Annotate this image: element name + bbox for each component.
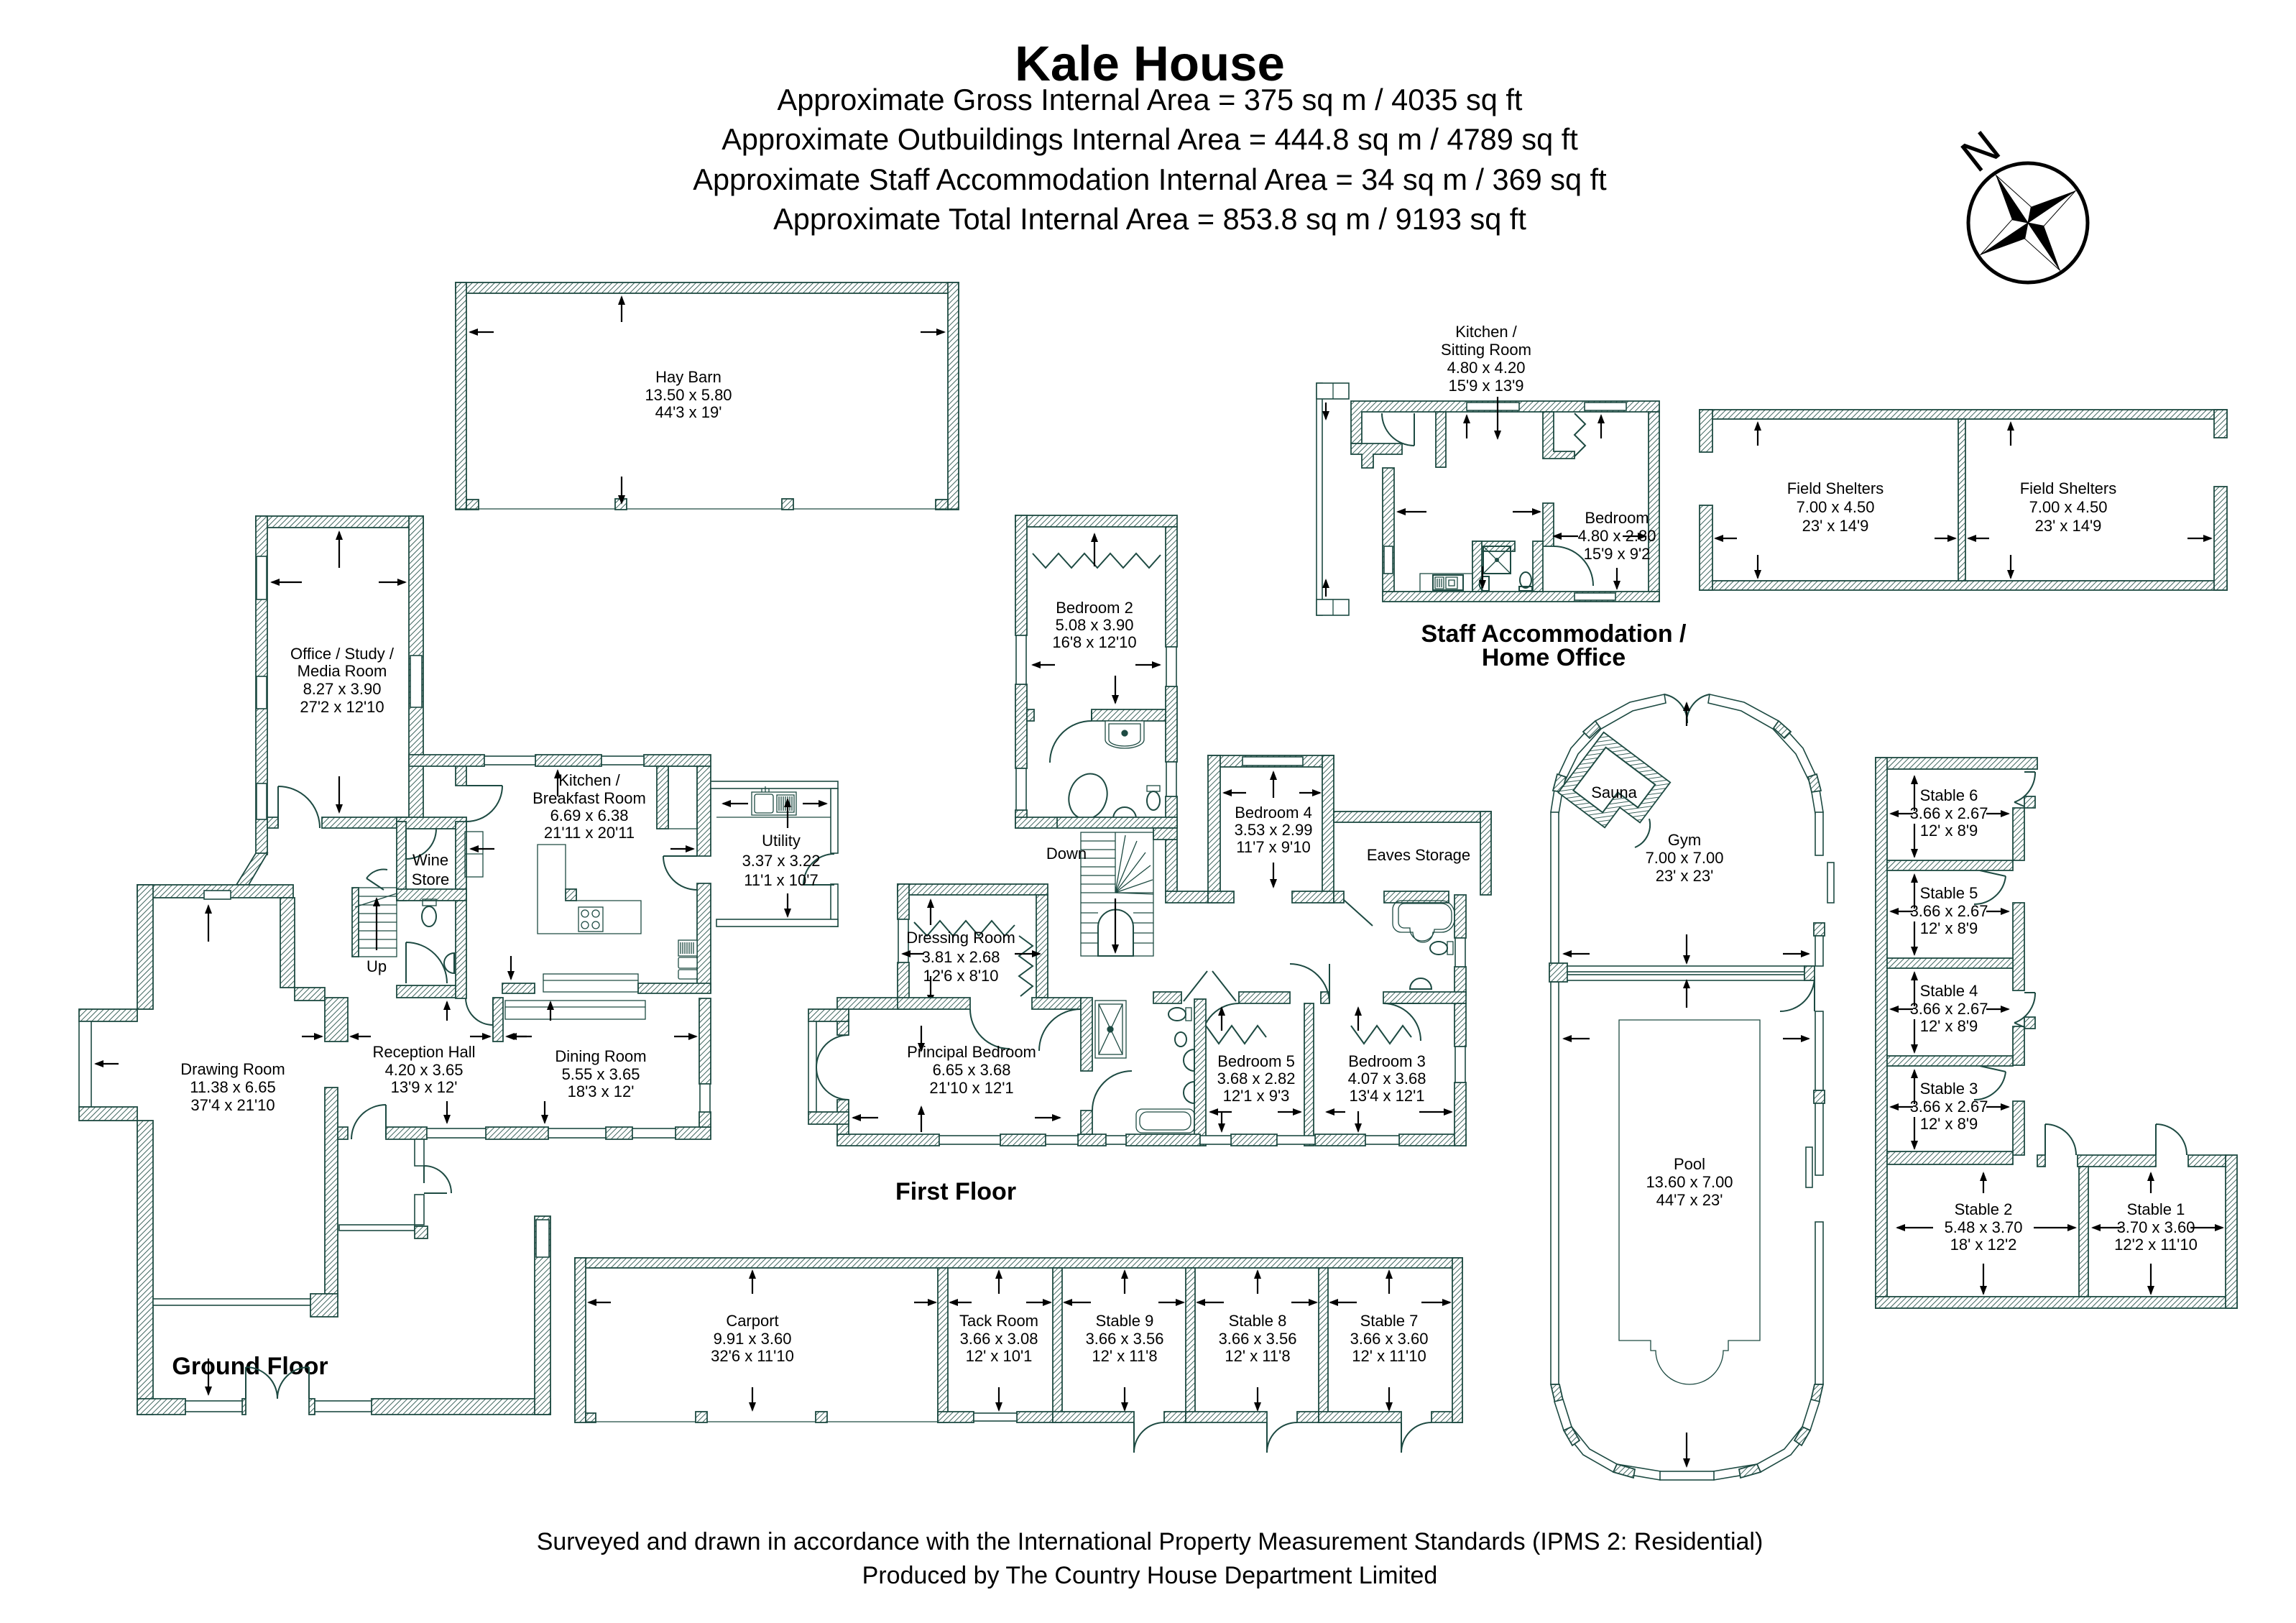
svg-text:3.66 x 3.56: 3.66 x 3.56 [1086,1330,1164,1348]
svg-text:8.27 x 3.90: 8.27 x 3.90 [303,680,382,698]
svg-text:Media Room: Media Room [298,662,387,680]
svg-text:6.69 x 6.38: 6.69 x 6.38 [550,806,629,824]
svg-text:9.91 x 3.60: 9.91 x 3.60 [714,1330,792,1348]
svg-text:Office / Study /: Office / Study / [290,645,395,663]
svg-text:Stable 3: Stable 3 [1920,1080,1978,1098]
svg-text:Drawing Room: Drawing Room [180,1060,285,1078]
svg-text:3.66 x 2.67: 3.66 x 2.67 [1910,1098,1988,1116]
svg-text:44'7 x 23': 44'7 x 23' [1656,1191,1723,1209]
svg-text:Store: Store [412,870,450,888]
svg-text:Up: Up [366,957,387,975]
svg-text:13.60 x 7.00: 13.60 x 7.00 [1646,1173,1733,1191]
svg-text:12'1 x 9'3: 12'1 x 9'3 [1223,1087,1290,1105]
svg-text:21'11 x 20'11: 21'11 x 20'11 [544,824,635,842]
svg-text:Stable 9: Stable 9 [1096,1312,1154,1330]
svg-text:5.08 x 3.90: 5.08 x 3.90 [1056,616,1134,634]
svg-text:21'10 x 12'1: 21'10 x 12'1 [929,1079,1013,1097]
svg-text:Approximate Total Internal Are: Approximate Total Internal Area = 853.8 … [773,202,1526,236]
svg-text:Stable 8: Stable 8 [1229,1312,1287,1330]
svg-text:23' x 23': 23' x 23' [1656,867,1714,885]
svg-text:3.68 x 2.82: 3.68 x 2.82 [1217,1070,1296,1088]
svg-text:12' x 11'8: 12' x 11'8 [1092,1347,1157,1365]
svg-text:11.38 x 6.65: 11.38 x 6.65 [190,1078,275,1096]
svg-text:3.53 x 2.99: 3.53 x 2.99 [1235,821,1313,839]
svg-text:Eaves Storage: Eaves Storage [1367,846,1470,864]
svg-text:Sitting Room: Sitting Room [1441,341,1531,359]
svg-text:Sauna: Sauna [1591,783,1637,801]
svg-text:Home Office: Home Office [1482,644,1626,671]
svg-text:Utility: Utility [762,832,801,850]
svg-text:Wine: Wine [412,851,448,869]
svg-text:12'2 x 11'10: 12'2 x 11'10 [2114,1236,2198,1254]
svg-text:12' x 8'9: 12' x 8'9 [1920,1017,1978,1035]
svg-text:Bedroom 2: Bedroom 2 [1056,599,1133,617]
svg-text:Bedroom 3: Bedroom 3 [1348,1052,1426,1070]
svg-text:37'4 x 21'10: 37'4 x 21'10 [190,1096,275,1114]
svg-text:18'3 x 12': 18'3 x 12' [568,1082,635,1100]
svg-text:7.00 x 4.50: 7.00 x 4.50 [1797,498,1875,516]
svg-text:4.80 x 4.20: 4.80 x 4.20 [1447,359,1526,377]
svg-text:13'9 x 12': 13'9 x 12' [391,1078,458,1096]
svg-text:3.70 x 3.60: 3.70 x 3.60 [2117,1218,2195,1236]
svg-text:Stable 1: Stable 1 [2127,1200,2185,1218]
svg-text:44'3 x 19': 44'3 x 19' [655,403,722,421]
svg-text:4.20 x 3.65: 4.20 x 3.65 [385,1061,464,1079]
svg-text:Reception Hall: Reception Hall [372,1043,475,1061]
svg-text:Hay Barn: Hay Barn [655,368,721,386]
svg-text:Stable 5: Stable 5 [1920,884,1978,902]
svg-text:3.66 x 3.08: 3.66 x 3.08 [960,1330,1038,1348]
svg-text:11'7 x 9'10: 11'7 x 9'10 [1236,838,1310,856]
svg-text:Field Shelters: Field Shelters [2020,479,2117,497]
svg-text:Principal Bedroom: Principal Bedroom [907,1043,1036,1061]
svg-text:Approximate Staff Accommodatio: Approximate Staff Accommodation Internal… [693,162,1607,196]
svg-text:Stable 2: Stable 2 [1955,1200,2013,1218]
svg-text:Ground Floor: Ground Floor [172,1353,328,1380]
svg-text:Dining Room: Dining Room [555,1047,646,1065]
svg-text:Produced by The Country House: Produced by The Country House Department… [862,1562,1438,1589]
svg-text:Bedroom 5: Bedroom 5 [1217,1052,1295,1070]
svg-text:4.07 x 3.68: 4.07 x 3.68 [1348,1070,1426,1088]
svg-text:Tack Room: Tack Room [959,1312,1038,1330]
svg-text:13.50 x 5.80: 13.50 x 5.80 [645,386,732,404]
svg-text:Field Shelters: Field Shelters [1787,479,1884,497]
svg-text:Bedroom: Bedroom [1585,509,1649,527]
svg-text:23' x 14'9: 23' x 14'9 [1802,517,1869,535]
svg-text:12' x 11'10: 12' x 11'10 [1352,1347,1426,1365]
svg-text:3.81 x 2.68: 3.81 x 2.68 [922,948,1000,966]
svg-text:12'6 x 8'10: 12'6 x 8'10 [923,967,998,985]
svg-text:Stable 4: Stable 4 [1920,982,1978,1000]
svg-text:Breakfast Room: Breakfast Room [532,789,646,807]
svg-text:3.66 x 2.67: 3.66 x 2.67 [1910,902,1988,920]
svg-text:Surveyed and drawn in accordan: Surveyed and drawn in accordance with th… [537,1528,1764,1555]
svg-text:11'1 x 10'7: 11'1 x 10'7 [744,871,818,889]
svg-text:Dressing Room: Dressing Room [906,929,1015,947]
svg-text:6.65 x 3.68: 6.65 x 3.68 [933,1061,1011,1079]
svg-text:Kitchen /: Kitchen / [558,771,620,789]
svg-text:5.55 x 3.65: 5.55 x 3.65 [562,1065,640,1083]
svg-text:Bedroom 4: Bedroom 4 [1235,804,1312,822]
svg-text:Approximate Gross Internal Are: Approximate Gross Internal Area = 375 sq… [778,83,1523,116]
svg-text:Carport: Carport [726,1312,778,1330]
svg-text:Stable 6: Stable 6 [1920,786,1978,804]
svg-text:18' x 12'2: 18' x 12'2 [1950,1236,2017,1254]
svg-text:13'4 x 12'1: 13'4 x 12'1 [1349,1087,1424,1105]
svg-text:3.66 x 2.67: 3.66 x 2.67 [1910,804,1988,822]
svg-text:23' x 14'9: 23' x 14'9 [2035,517,2102,535]
svg-text:12' x 8'9: 12' x 8'9 [1920,822,1978,840]
svg-text:15'9 x 13'9: 15'9 x 13'9 [1448,377,1523,395]
svg-text:12' x 11'8: 12' x 11'8 [1225,1347,1290,1365]
svg-text:7.00 x 7.00: 7.00 x 7.00 [1646,849,1724,867]
svg-text:32'6 x 11'10: 32'6 x 11'10 [711,1347,794,1365]
svg-text:16'8 x 12'10: 16'8 x 12'10 [1052,633,1136,651]
svg-text:First Floor: First Floor [895,1178,1016,1205]
svg-text:3.66 x 2.67: 3.66 x 2.67 [1910,1000,1988,1018]
svg-text:12' x 8'9: 12' x 8'9 [1920,919,1978,937]
svg-text:3.37 x 3.22: 3.37 x 3.22 [742,852,821,870]
svg-text:Down: Down [1046,845,1087,863]
svg-text:Pool: Pool [1674,1155,1705,1173]
svg-text:Gym: Gym [1668,831,1701,849]
svg-text:Stable 7: Stable 7 [1360,1312,1419,1330]
svg-text:7.00 x 4.50: 7.00 x 4.50 [2029,498,2108,516]
svg-text:12' x 10'1: 12' x 10'1 [966,1347,1033,1365]
svg-text:3.66 x 3.60: 3.66 x 3.60 [1350,1330,1429,1348]
svg-text:Kitchen /: Kitchen / [1455,323,1517,341]
svg-text:27'2 x 12'10: 27'2 x 12'10 [300,698,384,716]
svg-text:Approximate Outbuildings Inter: Approximate Outbuildings Internal Area =… [721,122,1578,156]
svg-text:5.48 x 3.70: 5.48 x 3.70 [1945,1218,2023,1236]
svg-text:12' x 8'9: 12' x 8'9 [1920,1115,1978,1133]
svg-text:3.66 x 3.56: 3.66 x 3.56 [1219,1330,1297,1348]
svg-text:15'9 x 9'2: 15'9 x 9'2 [1584,545,1651,563]
